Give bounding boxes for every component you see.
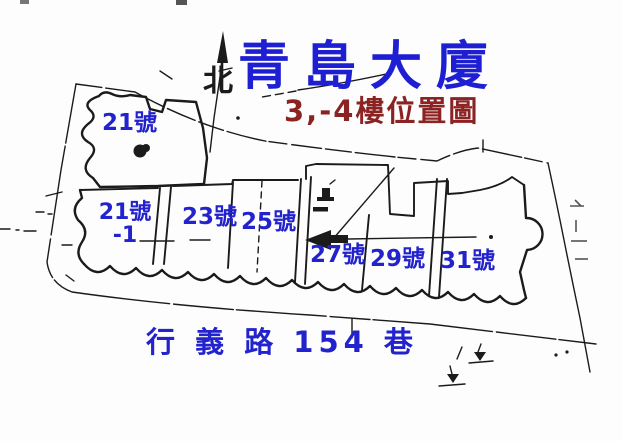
site-plan-page: 青島大廈 3,-4樓位置圖 北 21號 21號 -1 23號 25號 27號 2… [0,0,622,441]
unit-label-21-1-suffix: -1 [94,224,156,247]
leader-line [333,168,394,239]
street-name-label: 行 義 路 154 巷 [146,328,418,357]
unit-label-21: 21號 [102,112,157,135]
page-subtitle: 3,-4樓位置圖 [284,88,479,130]
unit-label-31: 31號 [440,250,495,273]
stair-symbol [313,180,335,212]
unit-label-21-1-number: 21號 [94,201,156,224]
unit-label-23: 23號 [182,206,237,229]
unit-label-21-1: 21號 -1 [94,201,156,247]
unit-label-25: 25號 [241,211,296,234]
unit-label-27: 27號 [310,244,365,267]
unit-label-29: 29號 [370,248,425,271]
survey-marks [439,200,588,386]
building-21-outline [82,92,207,187]
map-dot [134,144,151,158]
north-label: 北 [203,56,233,100]
